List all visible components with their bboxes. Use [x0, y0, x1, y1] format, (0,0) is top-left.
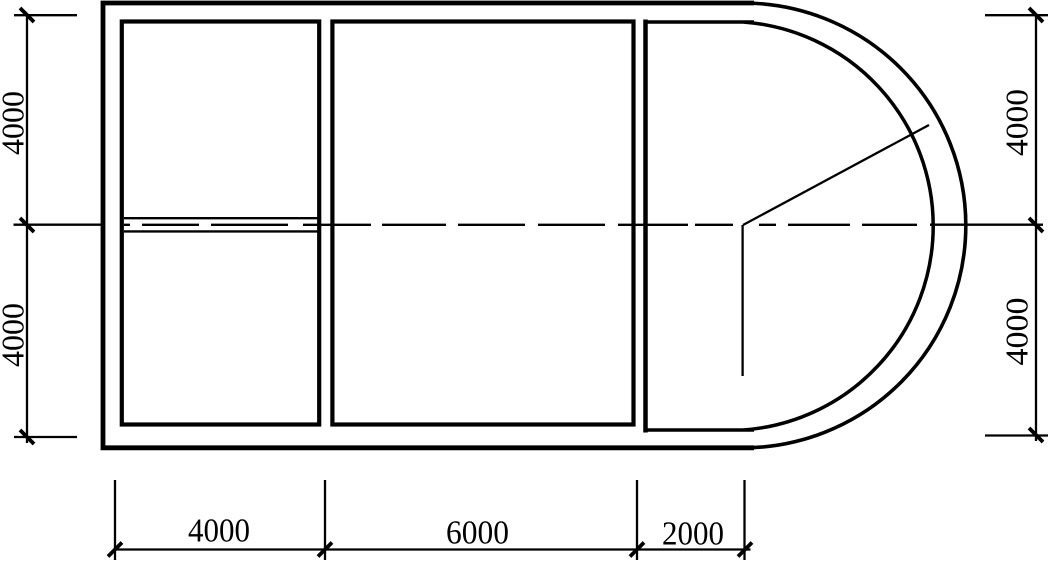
svg-text:4000: 4000 [999, 89, 1035, 156]
svg-text:6000: 6000 [446, 515, 509, 552]
svg-text:4000: 4000 [0, 91, 31, 155]
svg-text:4000: 4000 [0, 303, 31, 367]
svg-text:2000: 2000 [662, 516, 724, 553]
svg-text:4000: 4000 [188, 512, 250, 549]
svg-text:4000: 4000 [999, 298, 1035, 366]
